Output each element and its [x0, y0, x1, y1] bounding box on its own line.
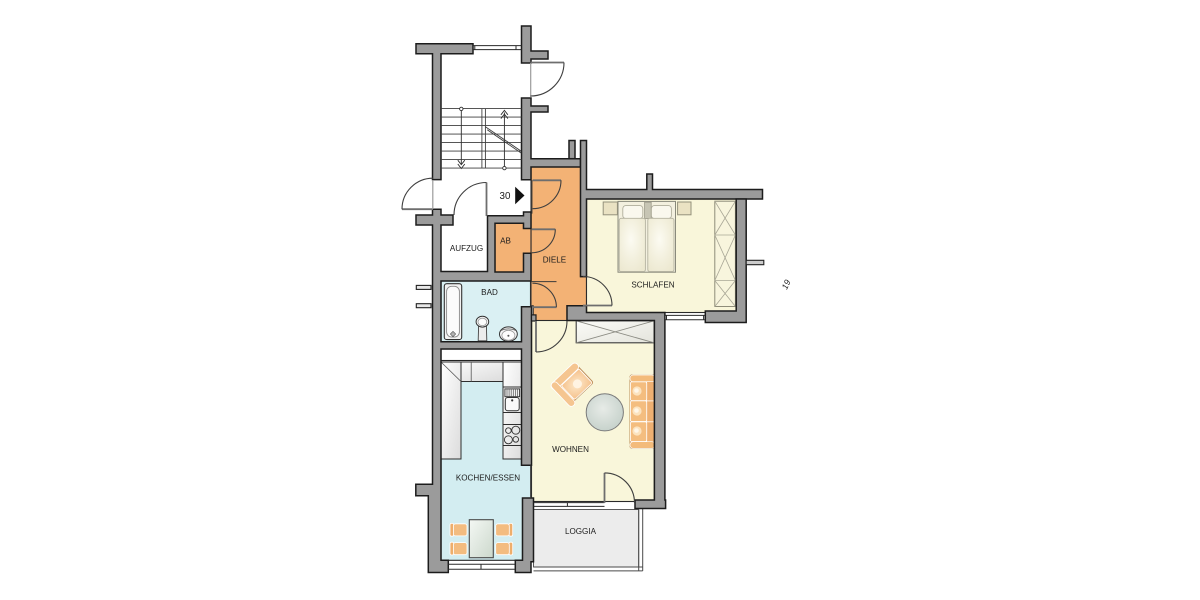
svg-text:30: 30: [500, 191, 511, 202]
svg-text:WOHNEN: WOHNEN: [552, 445, 589, 454]
svg-text:AB: AB: [500, 236, 511, 245]
svg-text:BAD: BAD: [481, 288, 498, 297]
svg-text:KOCHEN/ESSEN: KOCHEN/ESSEN: [456, 474, 520, 483]
svg-text:SCHLAFEN: SCHLAFEN: [631, 281, 674, 290]
svg-text:DIELE: DIELE: [543, 255, 567, 264]
svg-text:LOGGIA: LOGGIA: [565, 527, 597, 536]
svg-text:AUFZUG: AUFZUG: [450, 244, 483, 253]
